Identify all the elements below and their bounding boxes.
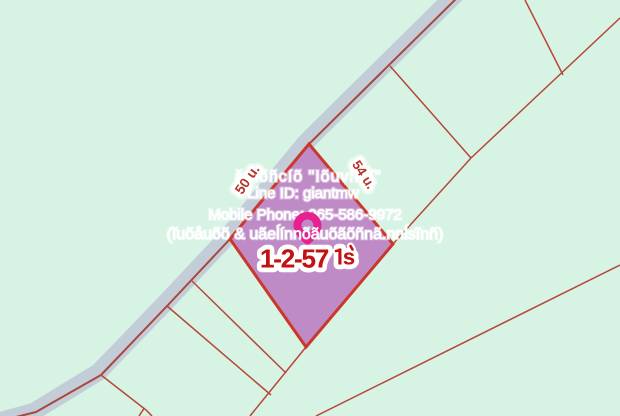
svg-text:Line ID: giantmw: Line ID: giantmw xyxy=(247,185,359,202)
svg-text:(ĩuõåuõõ & uãeĺínnõãuõãõñnã.nn: (ĩuõåuõõ & uãeĺínnõãuõãõñnã.nnĺsĩnñ) xyxy=(167,224,444,243)
svg-text:1-2-57: 1-2-57 xyxy=(260,244,329,274)
